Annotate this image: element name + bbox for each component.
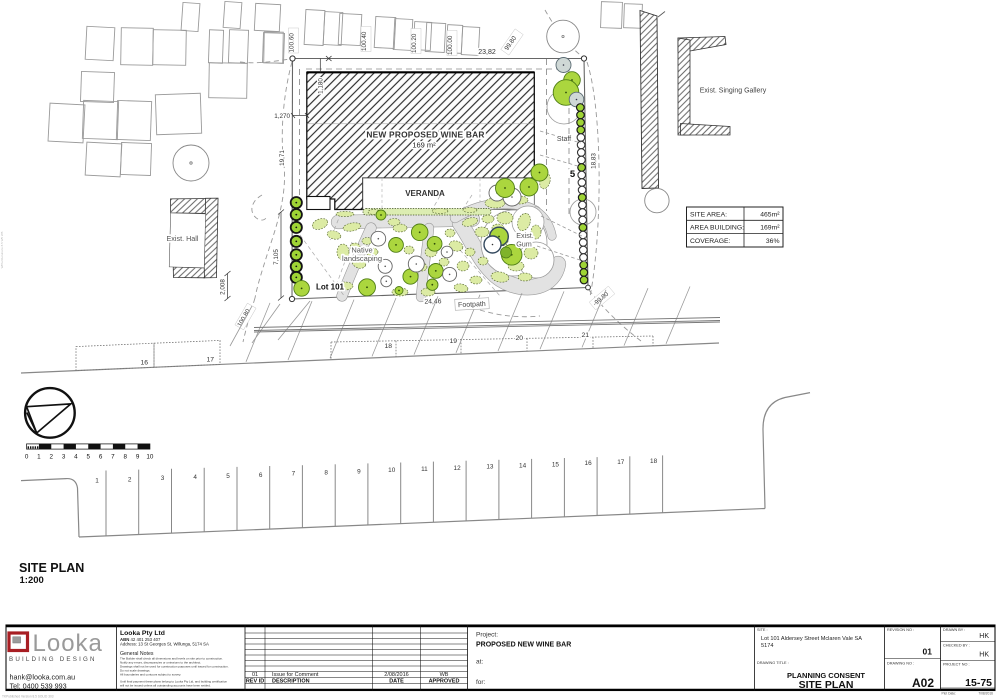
svg-text:10: 10 — [388, 467, 396, 474]
svg-text:4: 4 — [74, 454, 78, 461]
svg-text:21: 21 — [581, 332, 589, 339]
svg-text:6: 6 — [259, 472, 263, 479]
svg-text:0: 0 — [25, 454, 29, 461]
svg-text:8: 8 — [324, 469, 328, 476]
svg-text:9: 9 — [136, 454, 140, 461]
svg-text:8: 8 — [123, 454, 127, 461]
svg-text:Lot 101: Lot 101 — [316, 283, 345, 292]
svg-text:Staff: Staff — [557, 136, 571, 143]
svg-text:TKPublished Version 8.5 SOLID: TKPublished Version 8.5 SOLID 303 — [2, 695, 54, 699]
svg-text:REVISION NO :: REVISION NO : — [887, 628, 914, 632]
svg-text:Issue for Comment: Issue for Comment — [272, 672, 319, 678]
svg-text:PROJECT NO :: PROJECT NO : — [943, 662, 970, 666]
svg-text:DATE: DATE — [389, 678, 404, 684]
svg-text:WB: WB — [440, 672, 449, 678]
svg-text:AREA BUILDING:: AREA BUILDING: — [690, 225, 744, 232]
svg-text:10: 10 — [146, 454, 154, 461]
svg-text:9: 9 — [357, 468, 361, 475]
svg-text:Plot Date:: Plot Date: — [942, 692, 957, 696]
svg-text:3: 3 — [62, 454, 66, 461]
svg-text:Exist. Singing Gallery: Exist. Singing Gallery — [700, 88, 767, 95]
svg-text:2/08/2016: 2/08/2016 — [384, 672, 408, 678]
svg-text:1,180: 1,180 — [318, 78, 325, 94]
svg-text:All boundaries and contours su: All boundaries and contours subject to s… — [120, 673, 181, 677]
svg-text:7: 7 — [292, 471, 296, 478]
svg-text:100.60: 100.60 — [289, 33, 296, 53]
svg-text:18: 18 — [650, 458, 658, 465]
svg-text:169 m²: 169 m² — [412, 141, 436, 150]
svg-text:SITE PLAN: SITE PLAN — [19, 561, 84, 575]
svg-text:SITE PLAN: SITE PLAN — [799, 679, 854, 691]
svg-text:2: 2 — [50, 454, 54, 461]
svg-text:100.20: 100.20 — [411, 33, 418, 53]
svg-text:7: 7 — [111, 454, 115, 461]
svg-text:BUILDING DESIGN: BUILDING DESIGN — [9, 656, 97, 663]
svg-text:Looka: Looka — [33, 630, 103, 657]
svg-text:COVERAGE:: COVERAGE: — [690, 238, 731, 245]
svg-text:PROPOSED NEW WINE BAR: PROPOSED NEW WINE BAR — [476, 642, 571, 649]
svg-text:12: 12 — [454, 465, 462, 472]
svg-text:Address: 13 St Georges St, W: Address: 13 St Georges St, Willunga, 517… — [120, 642, 209, 647]
svg-text:1:200: 1:200 — [20, 575, 44, 586]
svg-text:01: 01 — [923, 647, 933, 657]
svg-text:Project:: Project: — [476, 632, 498, 639]
svg-text:CHECKED BY :: CHECKED BY : — [943, 643, 970, 647]
svg-text:14: 14 — [519, 463, 527, 470]
svg-text:HK: HK — [979, 652, 989, 659]
svg-text:3: 3 — [161, 475, 165, 482]
svg-text:24,46: 24,46 — [424, 298, 441, 306]
svg-text:DRAWING TITLE :: DRAWING TITLE : — [757, 661, 789, 665]
svg-text:19: 19 — [449, 338, 457, 345]
svg-text:1: 1 — [37, 454, 41, 461]
svg-text:DRAWN BY :: DRAWN BY : — [943, 628, 965, 632]
svg-text:465m²: 465m² — [760, 211, 780, 218]
svg-text:15-75: 15-75 — [965, 677, 992, 689]
svg-text:Exist. Hall: Exist. Hall — [167, 234, 199, 243]
svg-text:2: 2 — [128, 476, 132, 483]
svg-text:5: 5 — [86, 454, 90, 461]
svg-text:Lot 101 Aldersey Street Mclare: Lot 101 Aldersey Street Mclaren Vale SA — [761, 636, 862, 642]
svg-text:REV ID: REV ID — [246, 678, 264, 684]
svg-text:6: 6 — [99, 454, 103, 461]
svg-text:Tel: 0400 539 993: Tel: 0400 539 993 — [10, 682, 67, 691]
svg-text:APPROVED: APPROVED — [429, 678, 460, 684]
svg-text:7/08/2016: 7/08/2016 — [978, 692, 993, 696]
svg-text:01: 01 — [252, 672, 258, 678]
svg-text:hank@looka.com.au: hank@looka.com.au — [10, 673, 76, 682]
svg-text:18,83: 18,83 — [591, 153, 598, 169]
svg-text:2,008: 2,008 — [220, 279, 227, 295]
svg-text:WPlanSolutions 8.5 W5 W5: WPlanSolutions 8.5 W5 W5 — [0, 231, 4, 268]
svg-text:36%: 36% — [766, 238, 780, 245]
svg-text:16: 16 — [140, 360, 148, 367]
svg-text:100.40: 100.40 — [361, 31, 368, 51]
svg-text:19,71: 19,71 — [279, 150, 286, 166]
svg-text:for:: for: — [476, 679, 486, 686]
svg-text:Looka Pty Ltd: Looka Pty Ltd — [120, 630, 165, 637]
svg-text:100.00: 100.00 — [447, 35, 454, 55]
svg-text:7,105: 7,105 — [273, 249, 280, 265]
svg-text:169m²: 169m² — [760, 225, 780, 232]
svg-text:5: 5 — [570, 169, 576, 180]
svg-text:18: 18 — [384, 343, 392, 350]
svg-text:20: 20 — [515, 335, 523, 342]
svg-text:DRAWING NO :: DRAWING NO : — [887, 661, 914, 665]
svg-text:Footpath: Footpath — [458, 301, 486, 309]
svg-text:15: 15 — [552, 461, 560, 468]
svg-text:16: 16 — [585, 460, 593, 467]
svg-text:Gum: Gum — [516, 240, 532, 249]
svg-text:will not be issued unless all: will not be issued unless all outstandin… — [120, 684, 211, 688]
svg-text:SITE :: SITE : — [757, 628, 768, 632]
svg-text:SITE AREA:: SITE AREA: — [690, 211, 727, 218]
svg-text:A02: A02 — [912, 676, 934, 690]
svg-text:17: 17 — [617, 459, 625, 466]
svg-text:DESCRIPTION: DESCRIPTION — [272, 678, 310, 684]
svg-text:4: 4 — [193, 474, 197, 481]
svg-text:17: 17 — [206, 357, 214, 364]
svg-text:at:: at: — [476, 659, 483, 666]
svg-text:1,270: 1,270 — [274, 113, 290, 120]
svg-text:23,82: 23,82 — [478, 49, 496, 56]
svg-text:5: 5 — [226, 473, 230, 480]
svg-text:VERANDA: VERANDA — [405, 189, 445, 198]
svg-text:13: 13 — [486, 464, 494, 471]
svg-text:1: 1 — [95, 478, 99, 485]
svg-text:landscaping: landscaping — [342, 254, 382, 263]
svg-text:11: 11 — [421, 466, 428, 473]
svg-text:5174: 5174 — [761, 643, 773, 649]
svg-text:NEW PROPOSED WINE BAR: NEW PROPOSED WINE BAR — [366, 130, 484, 140]
svg-text:HK: HK — [979, 633, 989, 640]
